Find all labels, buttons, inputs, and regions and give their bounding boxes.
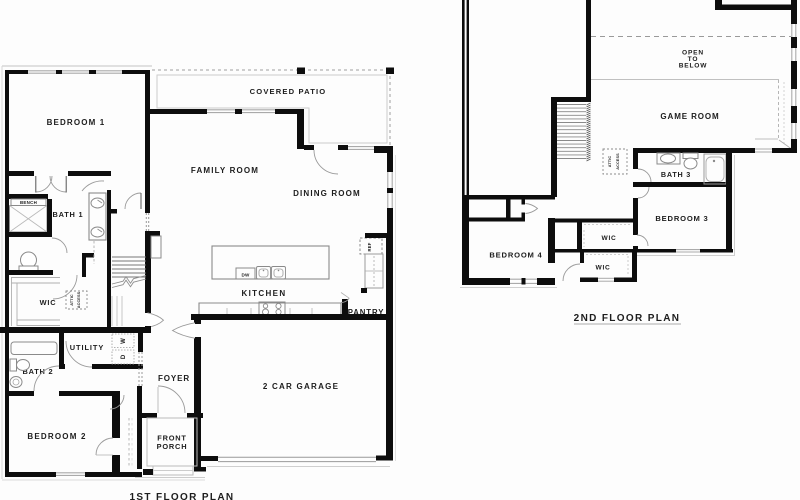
svg-text:1ST FLOOR PLAN: 1ST FLOOR PLAN xyxy=(129,492,234,500)
svg-text:BELOW: BELOW xyxy=(679,63,708,70)
svg-text:BEDROOM 1: BEDROOM 1 xyxy=(47,118,106,127)
svg-text:ATTIC: ATTIC xyxy=(70,294,74,306)
svg-text:KITCHEN: KITCHEN xyxy=(241,289,286,298)
svg-text:ACCESS: ACCESS xyxy=(616,153,620,170)
svg-text:WIC: WIC xyxy=(596,265,611,272)
svg-text:W: W xyxy=(121,338,127,344)
svg-text:WIC: WIC xyxy=(602,235,617,242)
svg-text:BENCH: BENCH xyxy=(20,200,37,205)
svg-text:FAMILY ROOM: FAMILY ROOM xyxy=(191,166,259,175)
svg-text:2ND FLOOR PLAN: 2ND FLOOR PLAN xyxy=(574,313,681,324)
svg-text:D: D xyxy=(121,354,127,359)
svg-text:WIC: WIC xyxy=(40,298,57,307)
svg-text:FOYER: FOYER xyxy=(158,374,190,383)
svg-text:BEDROOM 3: BEDROOM 3 xyxy=(655,214,708,223)
svg-text:BATH 3: BATH 3 xyxy=(661,170,691,179)
svg-text:REF: REF xyxy=(367,242,372,251)
svg-text:GAME ROOM: GAME ROOM xyxy=(660,112,719,121)
svg-text:UTILITY: UTILITY xyxy=(70,343,105,352)
svg-text:BATH 1: BATH 1 xyxy=(53,210,84,219)
svg-text:COVERED PATIO: COVERED PATIO xyxy=(250,87,327,96)
svg-text:ATTIC: ATTIC xyxy=(608,156,612,168)
svg-text:PORCH: PORCH xyxy=(157,442,188,451)
svg-text:DINING ROOM: DINING ROOM xyxy=(293,189,361,198)
svg-text:BEDROOM 2: BEDROOM 2 xyxy=(27,432,86,441)
svg-text:DW: DW xyxy=(241,273,250,278)
svg-text:ACCESS: ACCESS xyxy=(77,291,81,308)
svg-text:BEDROOM 4: BEDROOM 4 xyxy=(489,251,542,260)
svg-text:2 CAR GARAGE: 2 CAR GARAGE xyxy=(263,382,339,391)
